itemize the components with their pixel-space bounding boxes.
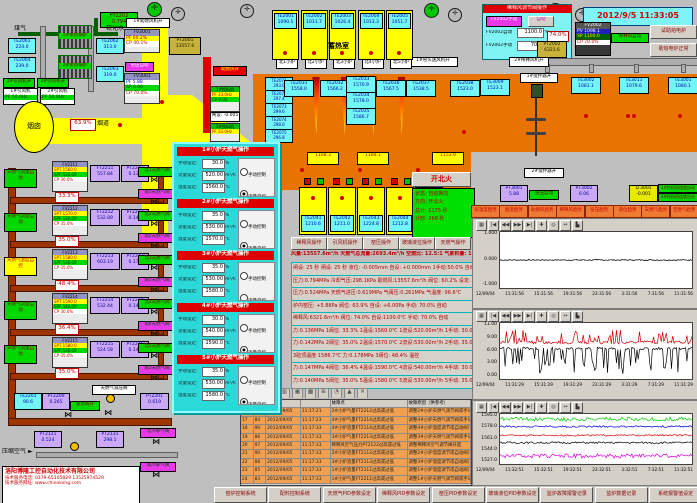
alarm-dot [160,100,164,104]
plot-area [499,322,693,380]
valve-icon[interactable]: ⋈ [150,329,158,337]
company-web[interactable]: 技术服务网址: www.chinakong.com [5,481,137,487]
toolbar-icon[interactable]: ▦ [476,311,487,322]
operation-button[interactable]: 玻璃液位操作 [399,237,435,250]
manual-set-field[interactable]: 30.0 [202,315,225,325]
mode-radio-group: 手动控制 ●流量自控 温度自控 [238,314,275,353]
te2036-indicator: TE20361567.5 [376,80,406,97]
y-tick: 6.00 [487,348,497,353]
radio-manual[interactable]: 手动控制 [240,213,274,232]
y-tick: -1.000 [482,282,497,287]
temp-set-label: 温度设定: [178,185,198,191]
te3009-indicator: TE30091523.1 [480,79,510,96]
nav-button[interactable]: 天燃气PID参数设定 [323,487,376,503]
unit-label: ℃ [225,185,230,191]
fan-icon: ✛ [240,4,254,18]
port-label: 北3小炉 [333,59,355,69]
toolbar-icon[interactable]: ▙ [572,311,583,322]
te-indicator: TE2075296.8 [265,129,293,143]
alarm-row[interactable]: 22 88 2012/09/05 11:17:33 3#小炉流量FT2113过高… [241,459,471,467]
ft-indicator: FT2211557.84 [90,165,120,182]
dilution-auto-label: 稀释风自动 [611,33,649,43]
toolbar-icon[interactable]: ◀◀ [500,311,511,322]
status-row: 总计: 1175 秒 [415,208,472,214]
popup-section: 2#小炉天燃气操作 手动设定: 35.0 % 流量设定: 530.00 m³/h… [177,199,274,249]
soft-water-label: 软化水 [106,25,124,33]
y-tick: 0.00 [487,373,497,378]
toolbar-icon[interactable]: ✚ [536,311,547,322]
toolbar-icon[interactable]: ◎ [548,311,559,322]
stirrer-shaft [535,96,537,156]
trend-button[interactable]: 助燃风趋势 [528,205,557,218]
indicator-red [391,178,398,185]
flow-set-field[interactable]: 530.00 [202,275,225,285]
fan-icon: ✛ [171,7,185,21]
alarm-row[interactable]: 23 85 2012/09/05 11:17:33 1#小炉流量FT2111过高… [241,467,471,475]
valve-icon[interactable]: ⋈ [150,219,158,229]
port-label: 北1小炉 [276,59,298,69]
radio-flow-auto[interactable]: ●流量自控 [240,391,274,405]
regenerator-chamber: TE20051051.7 [386,10,413,60]
y-tick: 1595.0 [481,413,497,418]
toolbar-icon[interactable]: ▶| [524,402,535,413]
pipe-hanger [634,64,639,73]
toolbar-icon[interactable]: ▦ [476,220,487,231]
section-title: 5#小炉天燃气操作 [177,355,274,364]
te-indicator: TE20441212.8 [388,215,412,232]
flow-set-field[interactable]: 520.00 [202,171,225,181]
toolbar-icon[interactable]: ▦ [292,388,303,398]
trend-chart-1: ▦|◀◀◀▶▶▶|✚◎↔▙ 1.0000.000-1.000 12/09/04 … [472,218,697,309]
nav-button[interactable]: 配料控制系统 [268,487,321,503]
fv-controller[interactable]: FV2214 SPT 1590.0 SPF 540.00 CP 30.0% [52,293,88,324]
alarm-row[interactable]: 18 90 2012/09/05 11:17:33 4#小炉流量FT2114过高… [241,425,471,433]
waste-heat-boiler-1: 1#余热锅炉 [58,25,92,49]
fv-controller[interactable]: FV2212 SPT 1570.0 SPF 530.00 CP 35.0% [52,205,88,236]
boost-electrode-normal-button[interactable]: 助熔电炉正常 [650,43,697,57]
te-indicator: TE20021011.7 [303,13,326,29]
gas-loop: 天燃气流量自动 FV2212 SPT 1570.0 SPF 530.00 CP … [0,205,176,249]
fire-direction-button[interactable]: 开北火 [412,172,471,187]
trend-button[interactable]: 烟温趋势 [499,205,528,218]
trend-button[interactable]: 液位趋势 [613,205,642,218]
south-crown-temp: 1153.9 [432,152,464,165]
operation-button[interactable]: 引风机操作 [327,237,363,250]
indicator-red [362,178,369,185]
x-axis-date: 12/09/04 [476,467,495,472]
operation-button[interactable]: 稀释风操作 [291,237,327,250]
valve-icon[interactable]: ⋈ [104,408,112,418]
toolbar-icon[interactable]: ⊞ [318,388,329,398]
y-tick: 3.00 [487,360,497,365]
alarm-row[interactable]: 20 97 2012/09/05 11:17:33 稀释风空气压力PT2122过… [241,442,471,450]
alarm-row[interactable]: 17 84 2012/09/05 11:17:23 4#小炉气量FT2214过高… [241,417,471,425]
toolbar-icon[interactable]: ▶▶ [512,402,523,413]
status-row: 计时: 269 秒 [415,216,472,222]
valve-icon[interactable]: ⋈ [150,241,158,249]
popup-section: 4#小炉天燃气操作 手动设定: 30.0 % 流量设定: 540.00 m³/h… [177,303,274,353]
popup-section: 1#小炉天燃气操作 手动设定: 30.0 % 流量设定: 520.00 m³/h… [177,147,274,197]
company-info: 洛阳博隆工控自动化技术有限公司 技术服务电话: 0379-65105829 13… [2,466,140,503]
valve-icon[interactable]: ⋈ [152,470,160,480]
nav-button[interactable]: 窑压PID参数设定 [432,487,485,503]
operation-button[interactable]: 天燃气操作 [435,237,471,250]
status-row: 状态: 自动换向 [415,191,472,197]
alarm-row[interactable]: 21 90 2012/09/05 11:17:33 2#小炉流量FT2112过高… [241,450,471,458]
gas-pipe-riser [94,18,98,34]
temp-set-field[interactable]: 1570.0 [202,235,225,245]
pt2131-indicator: PT2131298.1 [96,431,124,448]
te-indicator: TE20411210.6 [301,215,325,232]
alarm-dot [312,51,316,55]
ft-indicator: FT2214532.44 [90,297,120,314]
temp-set-field[interactable]: 1560.0 [202,183,225,193]
trend-button[interactable]: 天燃气趋势 [641,205,670,218]
gas-label: 煤气 [14,25,26,33]
temp-set-field[interactable]: 1580.0 [202,287,225,297]
fan-icon: ✛ [147,2,162,17]
id-fan2-panel: 2#引风机 PF 50.0Hz [40,88,75,105]
south-crown-temp: 1168.3 [307,152,339,165]
fv2002-controller[interactable]: FV2002 PV 1098.1 SP 1100.0 CP 70.0% [575,22,611,56]
toolbar-icon[interactable]: ▶▶ [512,311,523,322]
te2034-indicator: TE20341578.0 [346,92,376,109]
port-box: 北2小炉 [305,59,327,75]
pipe-hanger [681,64,686,73]
toolbar-icon[interactable]: ◔ [331,388,342,398]
radio-manual[interactable]: 手动控制 [240,161,274,180]
valve-icon[interactable]: ⋈ [152,437,160,447]
x-tick: 11:31:56 [505,291,524,296]
air-valve-icon[interactable] [70,442,79,451]
unit-label: m³/h [225,173,236,179]
manual-set-label: 手动设定: [178,161,198,167]
alarm-row[interactable]: 19 86 2012/09/05 11:17:33 3#小炉气量FT2213过高… [241,434,471,442]
toolbar-icon[interactable]: ◀◀ [500,402,511,413]
alarm-rows: 16 98 2012/09/05 11:17:21 2#小炉气量FT2212过高… [241,408,471,484]
manual-set-label: 手动设定: [178,369,198,375]
nav-button[interactable]: 系统报警值设定 [649,487,697,503]
section-title: 1#小炉天燃气操作 [177,147,274,156]
north-regen-label: 蓄热室 [328,42,349,51]
feeder1-panel[interactable]: 1#投料机 PF 33.0Hz CP 0.00 [210,86,240,112]
company-name: 洛阳博隆工控自动化技术有限公司 [5,468,137,476]
x-axis-ticks: 12/09/04 11:31:5615:31:5619:31:5623:31:5… [476,291,693,296]
flow-set-label: 流量设定: [178,225,198,231]
fv2001-controller[interactable]: FV2001 PF 60.2% CP 40.1% [124,29,160,53]
radio-flow-auto[interactable]: ●流量自控 [240,183,274,197]
radio-flow-auto[interactable]: 流量自控 [240,287,274,301]
manual-set-field[interactable]: 30.0 [202,159,225,169]
port-indicators [332,170,354,186]
x-tick: 3:32:51 [621,467,637,472]
manual-set-field[interactable]: 35.0 [202,263,225,273]
column-header-point[interactable]: 故障点 [331,400,408,408]
chart-toolbar: ▦|◀◀◀▶▶▶|✚◎↔▙ [476,311,583,322]
toolbar-icon[interactable]: ▙ [572,402,583,413]
fv-controller[interactable]: FV2211 SPT 1560.0 SPF 520.00 CP 30.0% [52,161,88,192]
radio-manual[interactable]: 手动控制 [240,317,274,336]
feeder2-panel[interactable]: 2#投料机 PF 33.0Hz [210,123,240,142]
column-header-cause[interactable]: 故障原因（供参考） [408,400,471,408]
te-indicator: TE2073299.6 [265,103,293,117]
toolbar-icon[interactable]: ◎ [548,402,559,413]
trend-button[interactable]: 空燃气趋势 [670,205,697,218]
ft-indicator: FT2213603.19 [90,253,120,270]
trend-button[interactable]: 窑压趋势 [585,205,614,218]
toolbar-icon[interactable]: |◀ [488,220,499,231]
alarm-dot [340,51,344,55]
valve-icon[interactable]: ⋈ [64,410,72,420]
auto-setpoint-field[interactable]: 1100.0 [517,28,544,38]
te3001-indicator: TE30011080.1 [668,77,697,94]
valve-position[interactable]: 33.3% [55,192,79,203]
popup-section: 5#小炉天燃气操作 手动设定: 35.0 % 流量设定: 530.00 m³/h… [177,355,274,405]
emergency-valve-label: 紧急阀开 [70,401,100,411]
temp-set-field[interactable]: 1580.0 [202,391,225,401]
indicator-red [333,178,340,185]
south-crown-temp: 1184.1 [357,152,389,165]
mode-radio-group: 手动控制 ●流量自控 温度自控 [238,366,275,405]
alarm-dot [340,196,344,200]
toolbar-icon[interactable]: ✚ [536,402,547,413]
x-tick: 11:32:51 [505,467,524,472]
boost-electrode-test-button[interactable]: 试助熔电炉 [650,25,697,39]
x-tick: 15:31:29 [534,382,553,387]
regenerator-chamber: TE20021011.7 [301,10,328,60]
x-tick: 19:31:56 [563,291,582,296]
x-axis-date: 12/09/04 [476,382,495,387]
valve-icon[interactable]: ⋈ [150,175,158,185]
flow-set-field[interactable]: 530.00 [202,223,225,233]
alarm-dot [283,51,287,55]
pressure-reducer-label: 天燃气减压阀 [92,385,136,395]
x-axis-ticks: 12/09/04 11:32:5115:32:5119:32:5123:32:5… [476,467,693,472]
valve-icon[interactable]: ⋈ [150,307,158,317]
indicator-green [317,178,324,185]
loop-mode-label: 天燃气流量自动 [4,301,37,320]
te2031-indicator: TE20311558.0 [284,80,314,97]
gate-setpoint[interactable]: 闸设: -0.005 [210,112,240,122]
kiln-pressure-auto-label: 窑压自动 [125,62,154,72]
te2061-indicator: TE2061224.0 [8,38,36,54]
unit-label: m³/h [225,329,236,335]
nav-button[interactable]: 窑炉控制系统 [214,487,267,503]
pt3002-indicator: PT30026.06 [570,185,598,202]
gas-loop: 天燃气流量自动 FV2211 SPT 1560.0 SPF 520.00 CP … [0,161,176,205]
dilution-fan-on-label: 2#稀释风机开 [509,57,549,67]
nav-button[interactable]: 监炉故障报警记录 [540,487,593,503]
flow-set-label: 流量设定: [178,329,198,335]
manual-set-label: 手动设定: [178,265,198,271]
radio-manual[interactable]: 手动控制 [240,265,274,284]
te-indicator: TE20421211.0 [330,215,354,232]
reducer-valve-icon[interactable] [106,394,115,403]
toolbar-icon[interactable]: ▦ [476,402,487,413]
valve-position[interactable]: 36.4% [55,324,79,335]
x-tick: 15:31:56 [534,291,553,296]
toolbar-icon[interactable]: ▩ [305,388,316,398]
valve-icon[interactable]: ⋈ [150,373,158,381]
nav-button[interactable]: 稀释风PID参数设定 [377,487,430,503]
x-tick: 23:31:29 [592,382,611,387]
toolbar-icon[interactable]: ↔ [560,220,571,231]
unit-label: % [225,213,229,219]
nav-button[interactable]: 玻璃液位PID参数设定 [486,487,539,503]
radio-flow-auto[interactable]: ●流量自控 [240,339,274,353]
operation-button[interactable]: 窑压操作 [363,237,399,250]
pt2121-indicator: PT21210.524 [34,431,62,448]
mode-radio-group: 手动控制 ●流量自控 温度自控 [238,158,275,197]
alarm-row[interactable]: 24 83 2012/09/05 11:17:33 1#小炉气量FT2211过高… [241,476,471,484]
port-box: 南2小炉 [332,170,354,186]
loop-mode-label: 天燃气流量自动 [4,169,37,188]
toolbar-icon[interactable]: |◀ [488,311,499,322]
valve-position[interactable]: 48.4% [55,280,79,291]
te2064-indicator: TE2064239.0 [8,57,36,73]
valve-icon[interactable]: ⋈ [150,285,158,293]
flow-set-field[interactable]: 540.00 [202,327,225,337]
id-fan2-on-label: 2#引风机开 [37,78,69,88]
ft-indicator: FT2212532.89 [90,209,120,226]
radio-flow-auto[interactable]: ●流量自控 [240,235,274,249]
x-tick: 19:31:29 [563,382,582,387]
port-indicators [390,170,412,186]
alarm-dot [369,196,373,200]
mode-radio-group: 手动控制 ●流量自控 温度自控 [238,210,275,249]
section-title: 3#小炉天燃气操作 [177,251,274,260]
flow-set-label: 流量设定: [178,173,198,179]
unit-label: ℃ [225,289,230,295]
port-label: 北4小炉 [362,59,384,69]
unit-label: ℃ [225,393,230,399]
toolbar-icon[interactable]: ▶| [524,311,535,322]
unit-label: m³/h [225,277,236,283]
valve-icon[interactable]: ⋈ [150,351,158,361]
toolbar-icon[interactable]: ▙ [572,220,583,231]
alarm-dot [311,196,315,200]
radio-manual[interactable]: 手动控制 [240,369,274,388]
x-tick: 7:31:29 [648,382,664,387]
x-tick: 3:31:29 [621,382,637,387]
valve-position[interactable]: 35.0% [55,368,79,379]
fv3001-controller[interactable]: FV3001 PF 5.88 SP 6.00 CP 70.0% [124,73,160,104]
alarm-dot [632,114,636,118]
fv-controller[interactable]: FV2215 SPT 1580.0 SPF 530.00 CP 35.0% [52,337,88,368]
unit-label: ℃ [225,237,230,243]
x-tick: 15:32:51 [534,467,553,472]
stirrer1-on-label: 1#搅拌器开 [520,73,558,83]
fv2002-manual-button[interactable]: FV2002手动 [486,16,522,27]
valve-icon[interactable]: ⋈ [150,263,158,273]
x-tick: 11:31:29 [505,382,524,387]
toolbar-icon[interactable]: ↔ [560,402,571,413]
te-indicator: TE20011090.1 [274,13,297,29]
unit-label: ℃ [225,341,230,347]
stirrer2-on-label: 2#搅拌器开 [524,168,564,178]
port-box: 北3小炉 [333,59,355,75]
toolbar-icon[interactable]: ◎ [548,220,559,231]
manual-set-field[interactable]: 35.0 [202,211,225,221]
flue-valve-position[interactable]: 63.9% [70,119,96,131]
comb-air-on-label: 助燃风开 [213,66,247,76]
alarm-dot [118,123,122,127]
toolbar-icon[interactable]: ▶| [524,220,535,231]
pt3001-indicator: PT30015.88 [500,185,528,202]
x-tick: 7:32:51 [648,467,664,472]
port-box: 北4小炉 [362,59,384,75]
te-indicator: TE20041013.3 [360,13,383,29]
toolbar-icon[interactable]: ◀◀ [500,220,511,231]
y-tick: 1.000 [484,231,497,236]
loop-mode-label: 天燃气流量自动 [4,213,37,232]
regenerator-chamber: TE20031026.4 [329,10,356,60]
te2038-indicator: TE20381523.0 [450,80,480,97]
valve-position[interactable]: 35.0% [55,236,79,247]
port-label: 北2小炉 [305,59,327,69]
indicator-green [346,178,353,185]
indicator-green [375,178,382,185]
manual-set-field[interactable]: 35.0 [202,367,225,377]
y-tick: 0.000 [484,257,497,262]
pt2002-indicator: PT20026321.6 [537,41,567,58]
auto-setpoint-label: FV2002自动 [486,30,512,36]
toolbar-icon[interactable]: ↔ [560,311,571,322]
fv-controller[interactable]: FV2213 SPT 1580.0 SPF 530.00 CP 35.0% [52,249,88,280]
x-tick: 19:32:51 [563,467,582,472]
toolbar-icon[interactable]: ▶▶ [512,220,523,231]
chimney: 烟囱 [14,101,54,153]
pipe-hanger [589,64,594,73]
te2037-indicator: TE20371538.5 [406,80,436,97]
port-box: 南4小炉 [390,170,412,186]
valve-icon[interactable]: ⋈ [150,197,158,205]
toolbar-icon[interactable]: ✚ [536,220,547,231]
toolbar-icon[interactable]: ▥ [279,388,290,398]
loop-mode-label: 天燃气温度自控 [4,257,37,276]
alarm-dot [678,114,682,118]
fv2002-auto-button[interactable]: 自动 [528,16,554,27]
x-tick: 23:31:56 [592,291,611,296]
y-tick: 1544.0 [481,447,497,452]
toolbar-icon[interactable]: ✕ [357,388,368,398]
flow-set-label: 流量设定: [178,381,198,387]
flow-set-field[interactable]: 530.00 [202,379,225,389]
chart-toolbar: ▦|◀◀◀▶▶▶|✚◎↔▙ [476,220,583,231]
gas-header-pipe [8,418,172,426]
mode-radio-group: 手动控制 流量自控 ●温度自控 [238,262,275,301]
nav-button[interactable]: 监炉数据记录 [595,487,648,503]
alarm-dot [369,51,373,55]
section-title: 2#小炉天燃气操作 [177,199,274,208]
port-indicators [361,170,383,186]
trend-button[interactable]: 稀释风趋势 [556,205,585,218]
toolbar-icon[interactable]: |◀ [488,402,499,413]
gas-loop: 天燃气温度自控 FV2213 SPT 1580.0 SPF 530.00 CP … [0,249,176,293]
toolbar-icon[interactable]: ▲ [344,388,355,398]
port-box: 北1小炉 [276,59,298,75]
port-indicators [390,70,412,75]
temp-set-label: 温度设定: [178,237,198,243]
port-indicators [305,70,327,75]
regenerator-chamber: TE20041013.3 [358,10,385,60]
trend-button[interactable]: 窑温度趋势 [471,205,500,218]
te-indicator: TE20431224.8 [359,215,383,232]
temp-set-field[interactable]: 1590.0 [202,339,225,349]
y-axis-ticks: 1595.01578.01561.01544.01527.0 [475,413,497,463]
x-tick: 11:32:51 [674,467,693,472]
kiln-head-fan-on-label: 1#窑头送风机开 [408,57,458,67]
